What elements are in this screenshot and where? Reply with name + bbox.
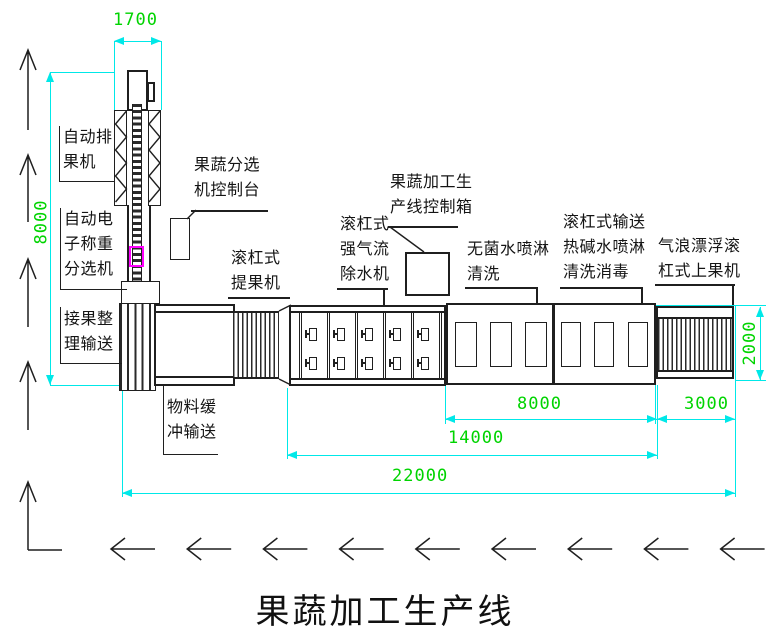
dim-arrowhead (657, 415, 667, 423)
buffer-top-rail (154, 311, 235, 313)
flow-arrow (111, 538, 155, 560)
nozzle-element (393, 357, 401, 370)
wash-window (628, 322, 648, 367)
leader (655, 284, 735, 286)
dim-ext (287, 388, 288, 459)
dewater-divider (411, 313, 414, 378)
label-air-float-loader: 气浪漂浮滚 杠式上果机 (658, 233, 741, 283)
drawing-title: 果蔬加工生产线 (0, 584, 770, 633)
dim-ext (122, 385, 123, 497)
nozzle-element (365, 328, 373, 341)
wash-window (561, 322, 581, 367)
flow-arrow (644, 538, 688, 560)
dewater-divider (439, 313, 442, 378)
flow-arrow (187, 538, 231, 560)
leader (536, 287, 538, 304)
dim-text-3000: 3000 (684, 394, 729, 414)
dim-arrowhead (151, 37, 161, 45)
nozzle-element (393, 328, 401, 341)
nozzle-element (421, 357, 429, 370)
dim-ext (735, 380, 766, 381)
dewater-divider (299, 313, 302, 378)
buffer-bottom-rail (154, 376, 235, 378)
dim-arrowhead (647, 451, 657, 459)
flow-arrow (20, 482, 36, 550)
leader (388, 226, 458, 228)
production-line-drawing: 1700 8000 22000 14000 8000 3000 2000 (0, 0, 770, 640)
wash-window (525, 322, 547, 367)
leader (383, 288, 385, 306)
label-line-control-box: 果蔬加工生 产线控制箱 (390, 169, 473, 219)
dim-arrowhead (287, 451, 297, 459)
label-auto-arrange: 自动排 果机 (63, 124, 113, 174)
dim-arrowhead (725, 489, 735, 497)
dim-text-8000-height: 8000 (32, 185, 52, 260)
dim-line-22000 (122, 493, 735, 494)
dim-text-2000: 2000 (740, 308, 760, 378)
tower-hatch-right (148, 110, 161, 206)
buffer-conveyor-body (154, 304, 235, 386)
label-buffer-convey: 物料缓 冲输送 (167, 394, 217, 444)
dewater-divider (327, 313, 330, 378)
sorter-console-box (170, 218, 190, 260)
label-alkali-spray: 滚杠式输送 热碱水喷淋 清洗消毒 (563, 209, 646, 284)
tower-column-line (149, 205, 151, 282)
dim-ext (161, 41, 162, 110)
flow-arrow (416, 538, 460, 560)
flow-arrow (721, 538, 765, 560)
dim-line-8000-span (445, 419, 657, 420)
dim-arrowhead (725, 415, 735, 423)
dim-ext (50, 385, 123, 386)
loader-roller-hatch (658, 319, 732, 370)
dim-line-14000 (287, 455, 657, 456)
dim-line-3000 (657, 419, 735, 420)
flow-arrow (568, 538, 612, 560)
chain-highlight-link (129, 246, 144, 267)
dim-arrowhead (46, 72, 54, 82)
wash-window (490, 322, 512, 367)
dewater-divider (355, 313, 358, 378)
flow-arrow (263, 538, 307, 560)
label-sorter-console: 果蔬分选 机控制台 (194, 152, 260, 202)
leader (465, 287, 537, 289)
tower-column-line (127, 205, 129, 282)
label-sterile-spray: 无菌水喷淋 清洗 (467, 236, 550, 286)
dim-arrowhead (46, 375, 54, 385)
tower-head-knob (147, 82, 155, 102)
dewater-cells (289, 313, 446, 378)
loader-bottom-rail (656, 370, 734, 372)
wash-window (594, 322, 614, 367)
label-airflow-dewater: 滚杠式 强气流 除水机 (340, 211, 390, 286)
flow-arrow (20, 362, 36, 430)
nozzle-element (337, 328, 345, 341)
dim-ext (114, 41, 115, 110)
label-roller-lifter: 滚杠式 提果机 (231, 245, 281, 295)
drop-chute (119, 303, 156, 391)
leader (191, 210, 268, 212)
leader (337, 288, 388, 290)
nozzle-element (309, 357, 317, 370)
leader (560, 287, 643, 289)
nozzle-element (365, 357, 373, 370)
dim-arrowhead (114, 37, 124, 45)
roller-lifter-body (233, 311, 279, 379)
line-control-box (405, 252, 450, 296)
nozzle-element (421, 328, 429, 341)
dim-ext (735, 305, 736, 497)
nozzle-element (309, 328, 317, 341)
dim-text-22000: 22000 (392, 466, 448, 486)
dim-arrowhead (122, 489, 132, 497)
leader (732, 284, 734, 305)
wash-window (455, 322, 477, 367)
label-weigh-sorter: 自动电 子称重 分选机 (64, 206, 114, 281)
dewater-bottom-rail (289, 378, 446, 380)
leader (641, 287, 643, 304)
dim-text-8000-span: 8000 (517, 394, 562, 414)
dewater-divider (383, 313, 386, 378)
leader (228, 297, 290, 299)
dim-arrowhead (647, 415, 657, 423)
dim-text-14000: 14000 (448, 428, 504, 448)
tower-hatch-left (114, 110, 127, 206)
label-receive-convey: 接果整 理输送 (64, 306, 114, 356)
nozzle-element (337, 357, 345, 370)
dim-text-1700: 1700 (113, 10, 158, 30)
dim-ext (50, 72, 115, 73)
flow-arrow (20, 50, 36, 130)
dim-arrowhead (445, 415, 455, 423)
flow-arrow (492, 538, 536, 560)
flow-arrow (20, 259, 36, 327)
flow-arrow (340, 538, 384, 560)
